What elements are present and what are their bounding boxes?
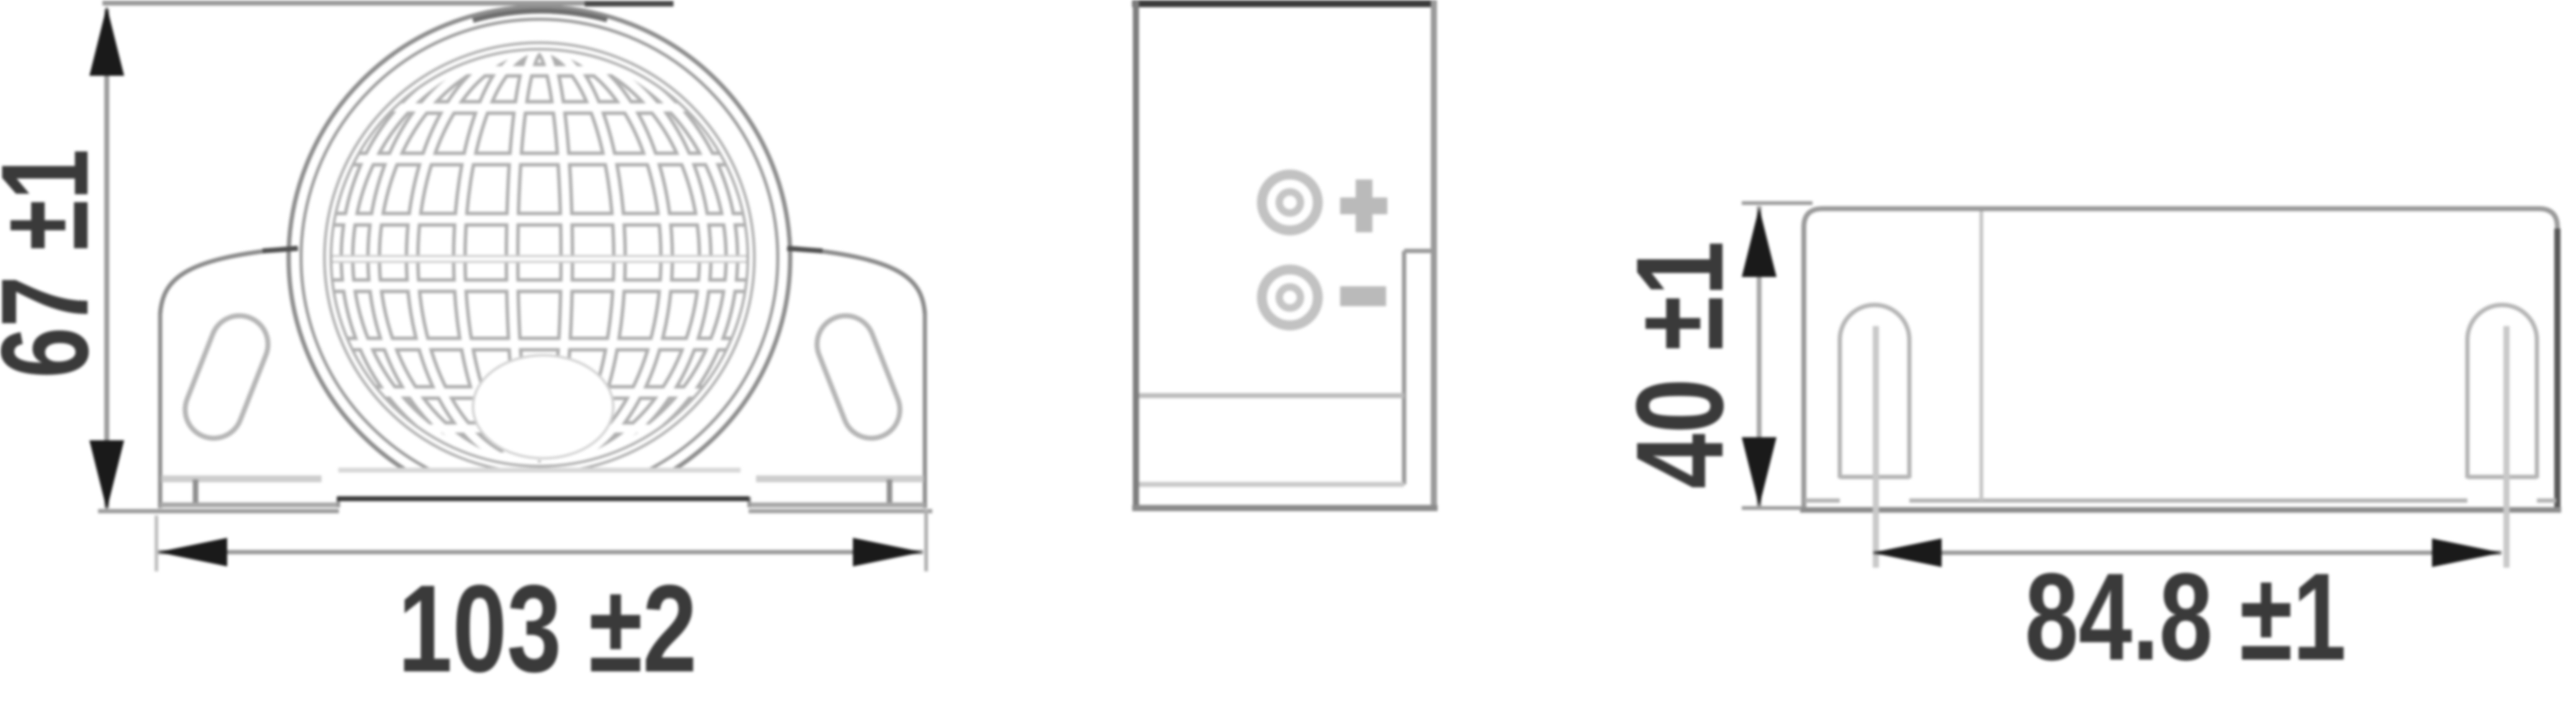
svg-text:67 ±1: 67 ±1 (0, 149, 114, 378)
svg-text:103 ±2: 103 ±2 (398, 560, 697, 698)
svg-text:40 ±1: 40 ±1 (1611, 241, 1749, 489)
svg-text:84.8 ±1: 84.8 ±1 (2025, 548, 2346, 686)
